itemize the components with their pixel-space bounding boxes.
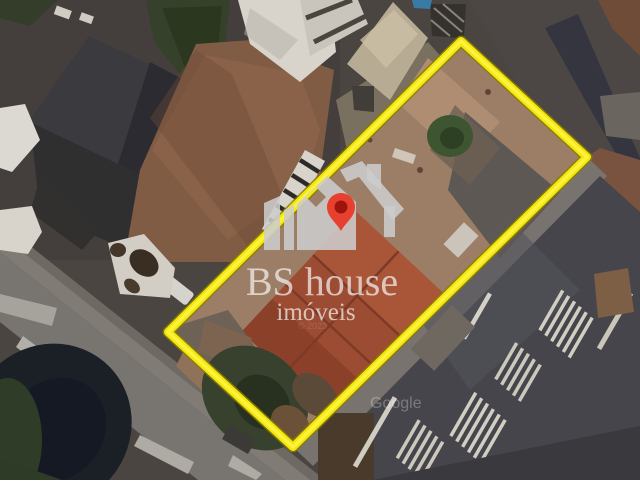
svg-text:imóveis: imóveis: [276, 299, 355, 326]
svg-text:Google: Google: [370, 395, 422, 412]
svg-text:BS house: BS house: [246, 259, 398, 304]
